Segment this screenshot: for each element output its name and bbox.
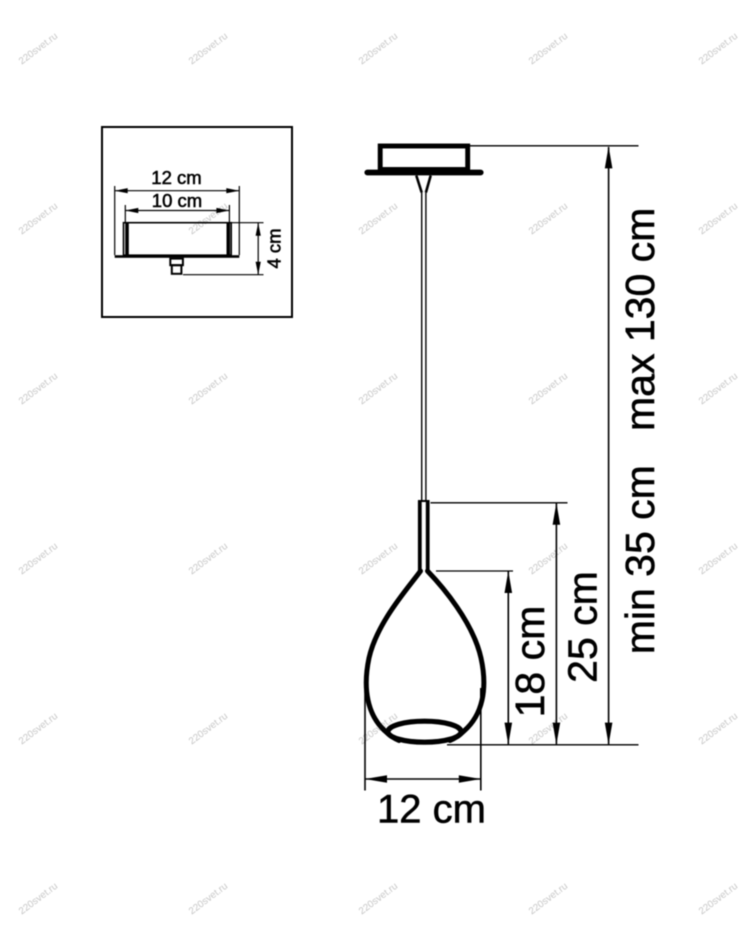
svg-text:12 cm: 12 cm xyxy=(377,788,486,832)
svg-text:min 35 cm max 130 cm: min 35 cm max 130 cm xyxy=(617,208,663,655)
svg-text:4 cm: 4 cm xyxy=(264,228,285,268)
svg-text:25 cm: 25 cm xyxy=(560,571,606,683)
svg-text:12 cm: 12 cm xyxy=(151,167,201,188)
svg-text:18 cm: 18 cm xyxy=(507,606,553,718)
svg-text:10 cm: 10 cm xyxy=(152,190,202,211)
